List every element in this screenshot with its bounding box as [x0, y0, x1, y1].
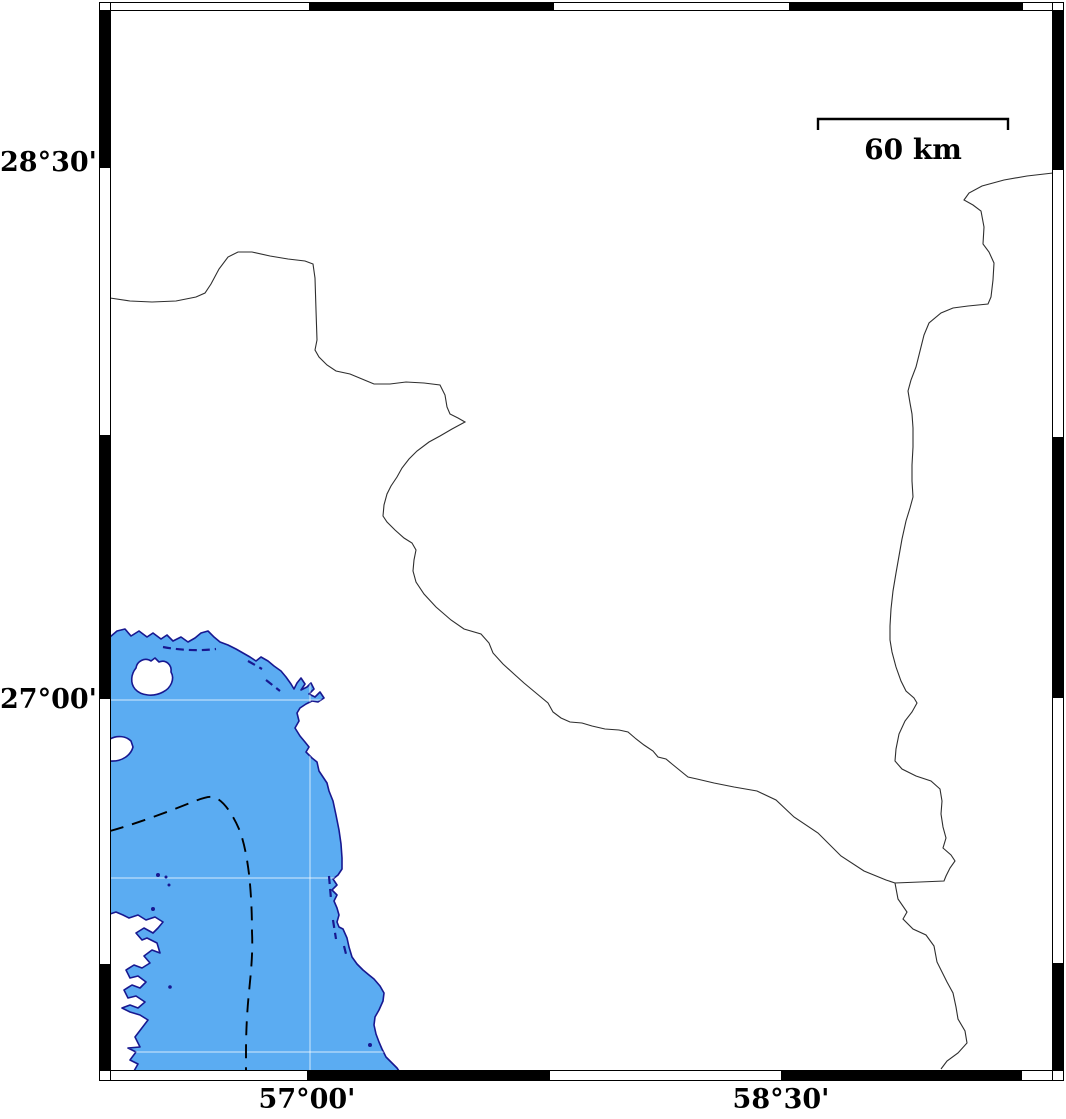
frame-corner [1053, 1071, 1064, 1081]
frame-tick-black [789, 2, 1023, 11]
island [132, 658, 173, 695]
latitude-label-27-00: 27°00' [0, 685, 90, 715]
frame-corner [1053, 3, 1064, 11]
frame-tick-black [99, 435, 111, 699]
map-canvas [0, 0, 1066, 1119]
islet-dot [168, 884, 171, 887]
islet-dot [165, 876, 168, 879]
frame-tick-black [307, 1070, 550, 1081]
islet-dot [168, 985, 172, 989]
frame-tick-black [99, 964, 111, 1070]
frame-tick-black [1052, 963, 1064, 1070]
islet-dot [151, 907, 155, 911]
frame-tick-black [781, 1070, 1022, 1081]
map-page: 28°30' 27°00' 57°00' 58°30' 60 km [0, 0, 1066, 1119]
frame-tick-black [1052, 437, 1064, 698]
islet-dot [156, 873, 160, 877]
longitude-label-57-00: 57°00' [222, 1085, 392, 1115]
latitude-label-28-30: 28°30' [0, 148, 90, 178]
frame-corner [100, 1071, 111, 1081]
frame-tick-black [99, 10, 111, 168]
frame-tick-black [1052, 10, 1064, 170]
frame-tick-black [309, 2, 554, 11]
frame-corner [100, 3, 111, 11]
scale-bar-label: 60 km [828, 133, 998, 166]
longitude-label-58-30: 58°30' [696, 1085, 866, 1115]
islet-dot [368, 1043, 372, 1047]
